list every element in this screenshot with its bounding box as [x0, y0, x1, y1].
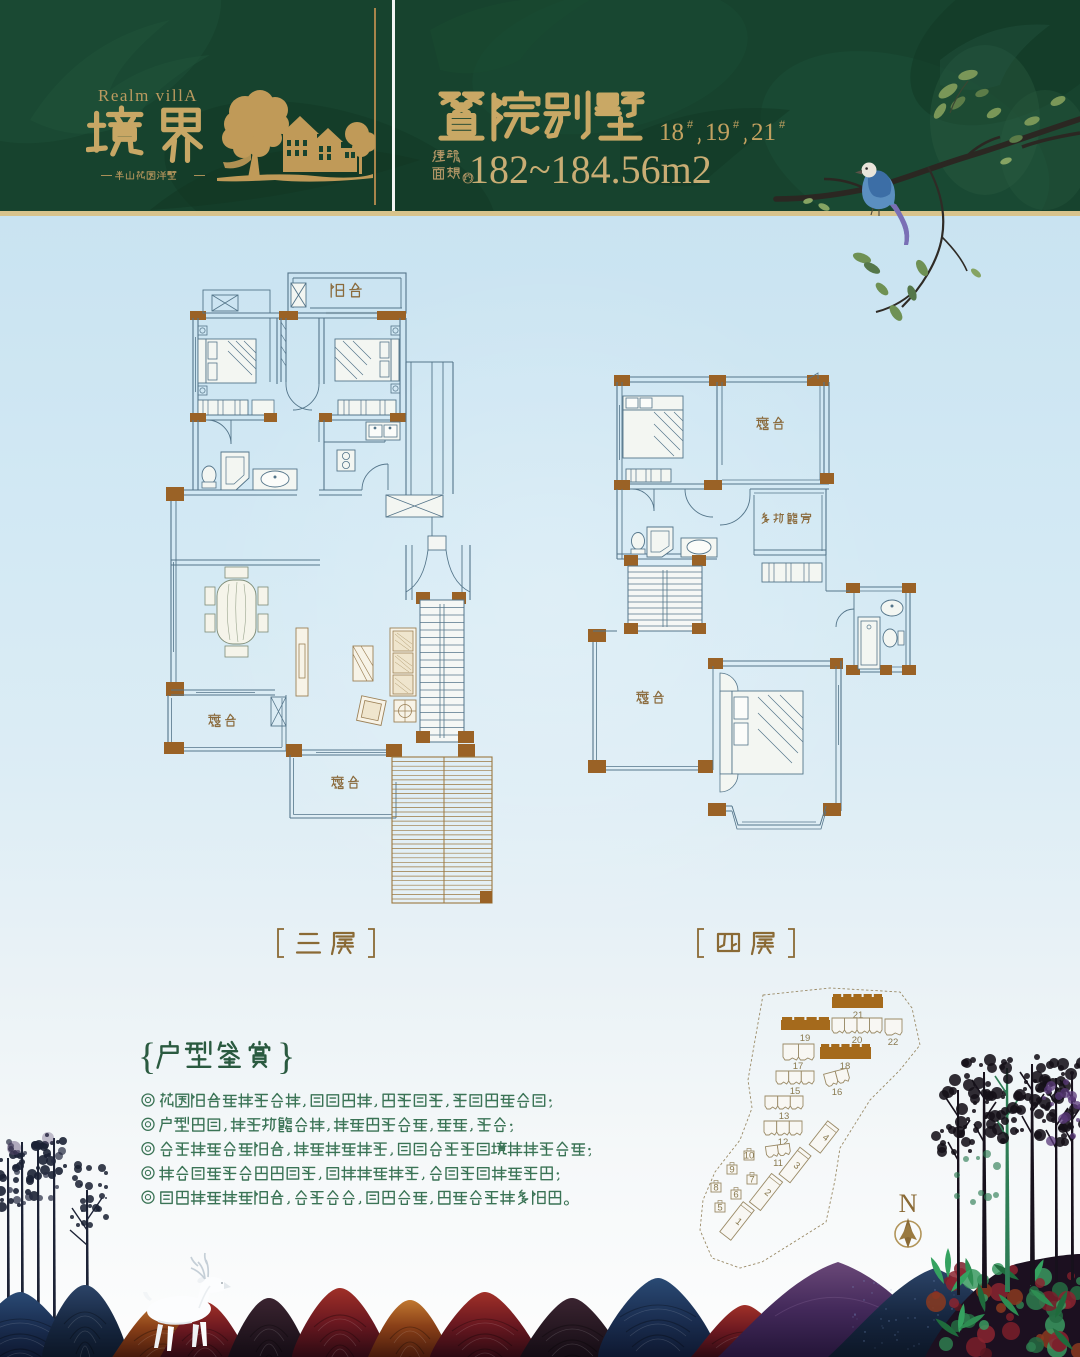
- svg-text:18: 18: [659, 119, 684, 146]
- svg-text:#: #: [733, 119, 740, 131]
- svg-text:19: 19: [705, 119, 730, 146]
- svg-text:#: #: [687, 119, 694, 131]
